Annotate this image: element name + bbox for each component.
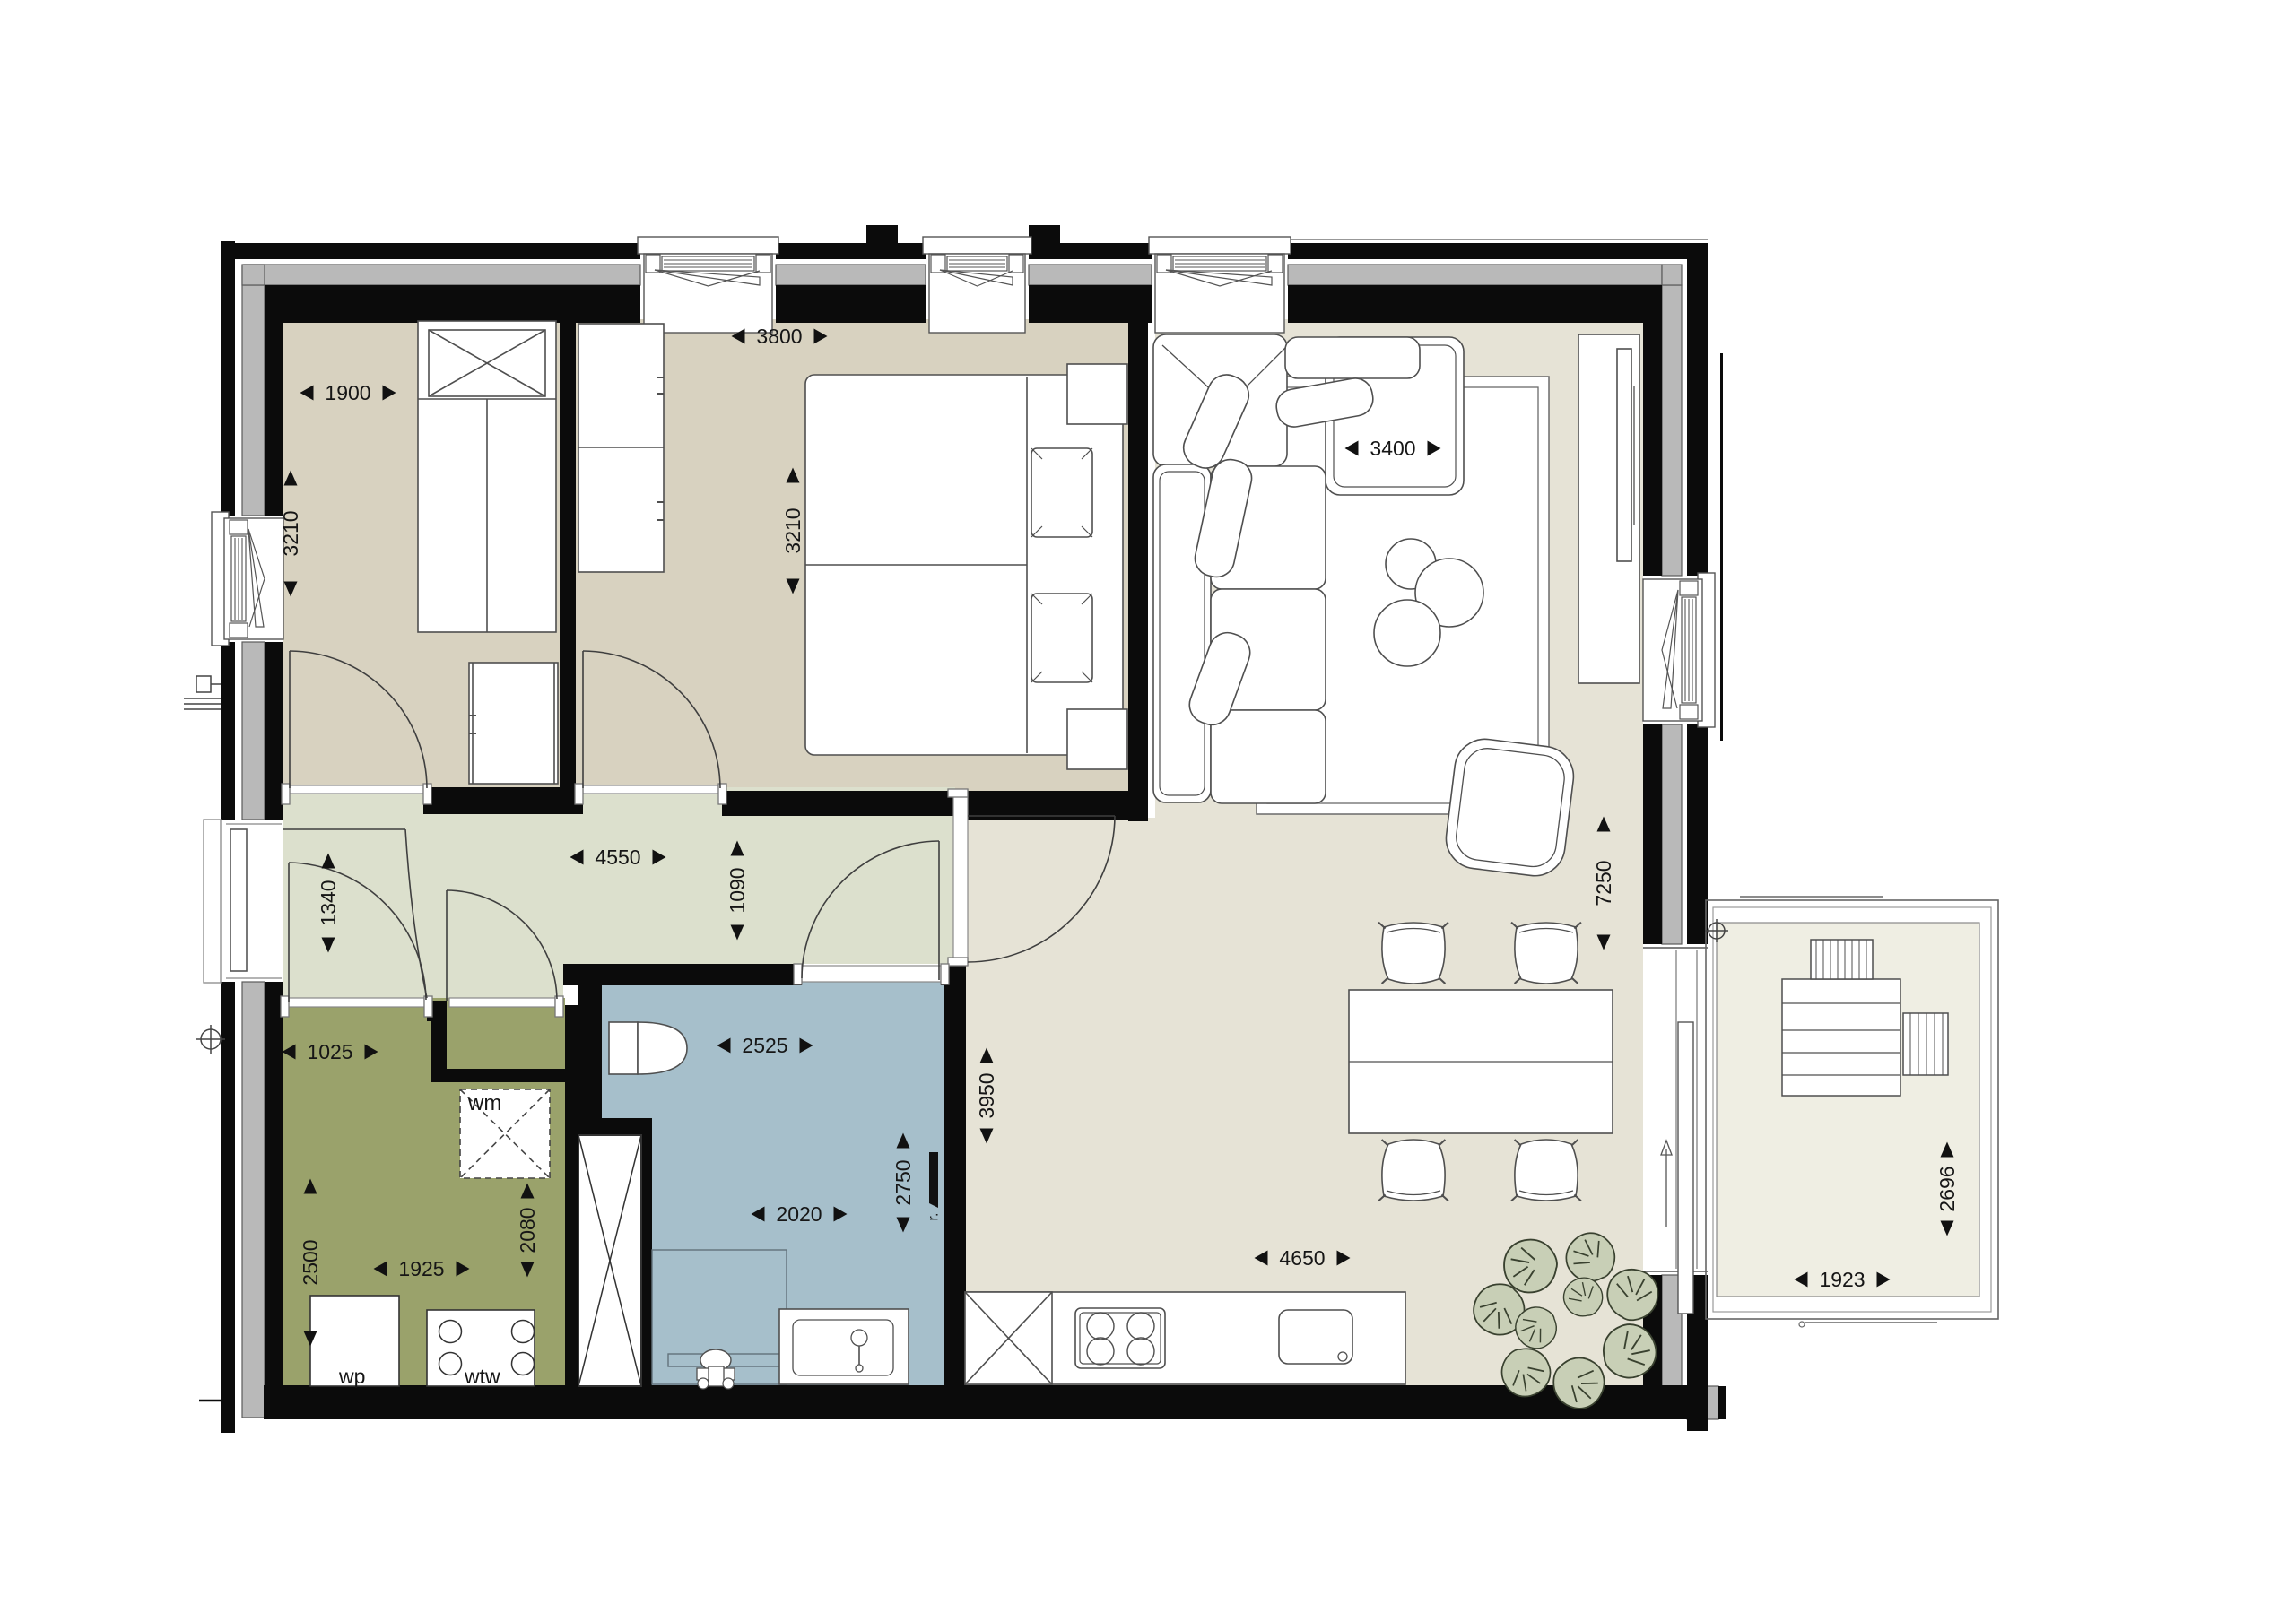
svg-text:1090: 1090 xyxy=(726,867,749,913)
svg-text:3210: 3210 xyxy=(279,510,302,556)
svg-text:r.: r. xyxy=(926,1213,942,1221)
svg-text:1900: 1900 xyxy=(325,381,370,404)
svg-text:3210: 3210 xyxy=(781,507,804,553)
svg-text:7250: 7250 xyxy=(1592,860,1615,906)
svg-text:1923: 1923 xyxy=(1819,1268,1865,1291)
svg-text:3400: 3400 xyxy=(1370,437,1415,460)
svg-text:2080: 2080 xyxy=(516,1207,539,1253)
svg-text:1925: 1925 xyxy=(398,1257,444,1280)
svg-text:1025: 1025 xyxy=(307,1040,352,1063)
svg-text:2525: 2525 xyxy=(742,1034,787,1057)
svg-text:4650: 4650 xyxy=(1279,1246,1325,1270)
svg-text:3950: 3950 xyxy=(975,1072,998,1118)
svg-text:wtw: wtw xyxy=(464,1365,500,1388)
svg-text:2500: 2500 xyxy=(299,1239,322,1285)
svg-text:2696: 2696 xyxy=(1935,1166,1959,1211)
svg-text:4550: 4550 xyxy=(595,846,640,869)
svg-text:1340: 1340 xyxy=(317,880,340,925)
svg-text:2020: 2020 xyxy=(776,1202,822,1226)
svg-text:3800: 3800 xyxy=(756,325,802,348)
svg-text:wp: wp xyxy=(338,1365,365,1388)
svg-text:2750: 2750 xyxy=(891,1159,915,1205)
svg-text:wm: wm xyxy=(467,1091,501,1115)
